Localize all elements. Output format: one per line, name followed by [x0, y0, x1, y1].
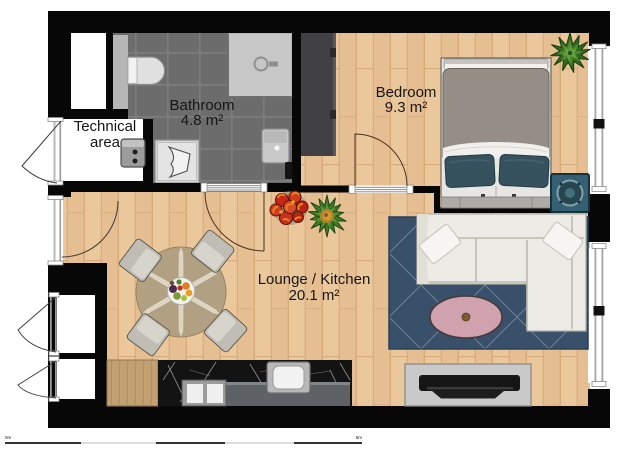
svg-text:9.3 m²: 9.3 m² — [385, 99, 428, 116]
svg-text:20.1 m²: 20.1 m² — [289, 287, 340, 304]
svg-text:5m: 5m — [356, 435, 363, 440]
svg-text:0m: 0m — [5, 435, 12, 440]
svg-text:Technical: Technical — [74, 118, 137, 135]
svg-text:area: area — [90, 134, 121, 151]
svg-text:Lounge / Kitchen: Lounge / Kitchen — [258, 271, 371, 288]
svg-text:4.8 m²: 4.8 m² — [181, 112, 224, 129]
